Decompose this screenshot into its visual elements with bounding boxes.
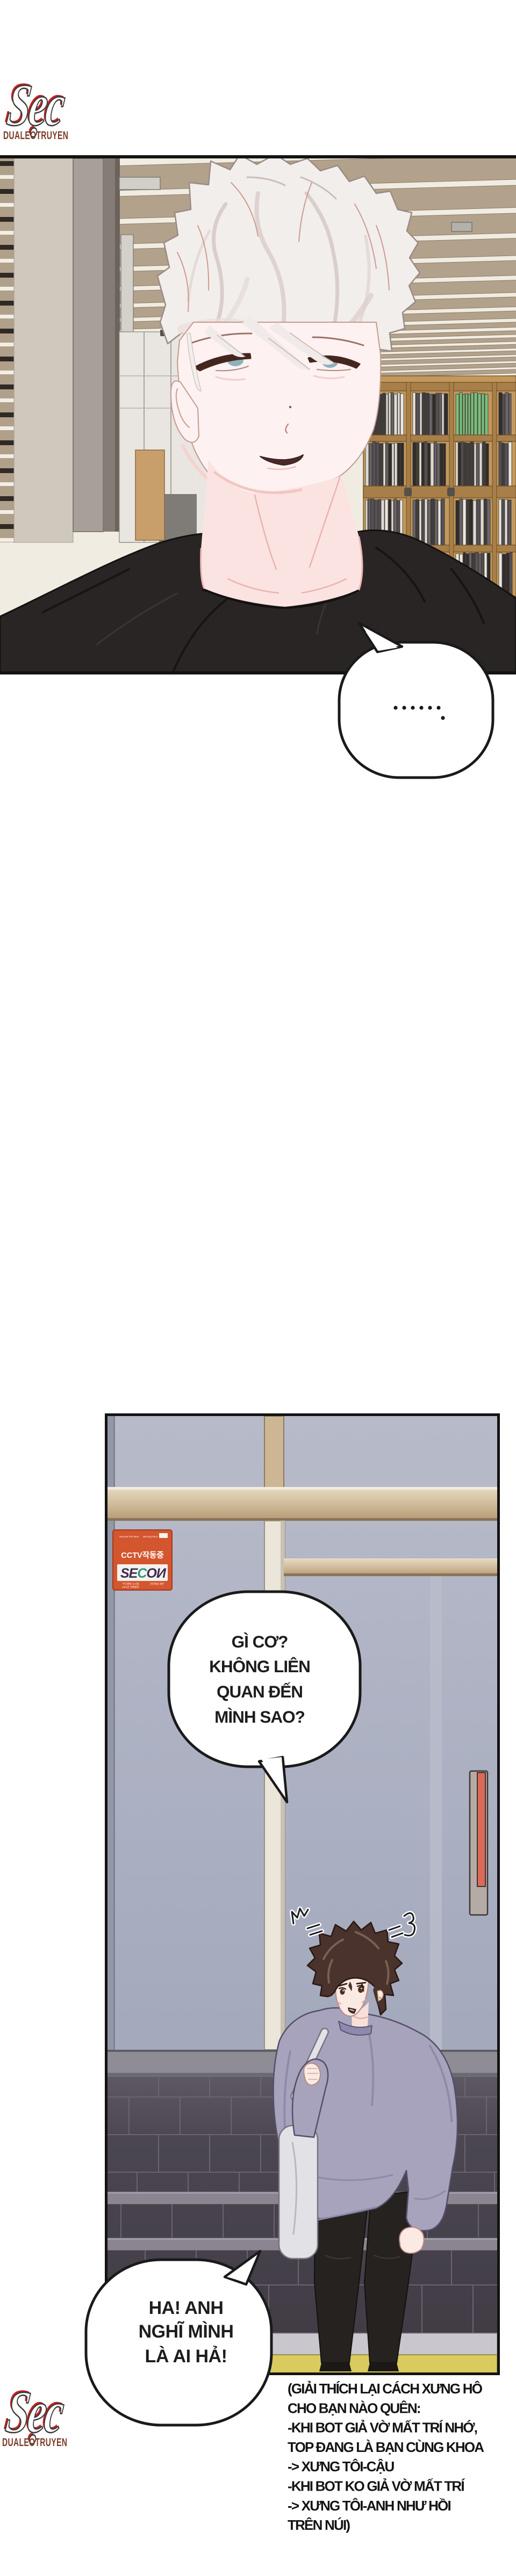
svg-text:HA! ANH: HA! ANH [149, 2298, 224, 2318]
svg-text:-KHI BOT KO GIẢ VỜ MẤT TRÍ: -KHI BOT KO GIẢ VỜ MẤT TRÍ [288, 2478, 465, 2494]
svg-text:TRÊN NÚI): TRÊN NÚI) [288, 2517, 350, 2533]
svg-text:-> XƯNG TÔI-CẬU: -> XƯNG TÔI-CẬU [288, 2458, 395, 2475]
svg-text:TOP ĐANG LÀ BẠN CÙNG KHOA: TOP ĐANG LÀ BẠN CÙNG KHOA [288, 2439, 484, 2455]
svg-text:CCTV작동중: CCTV작동중 [121, 1550, 164, 1560]
svg-text:Sẹc: Sẹc [3, 2379, 67, 2446]
svg-text:Secures The Next: Secures The Next [119, 1535, 139, 1538]
svg-text:LÀ AI HẢ!: LÀ AI HẢ! [145, 2346, 227, 2367]
svg-text:Security No.9: Security No.9 [143, 1535, 158, 1538]
svg-text:DUALEOTRUYEN: DUALEOTRUYEN [2, 2436, 67, 2448]
svg-text:MÌNH SAO?: MÌNH SAO? [214, 1707, 305, 1726]
svg-text:QUAN ĐẾN: QUAN ĐẾN [217, 1682, 303, 1701]
svg-text:-KHI BOT GIẢ VỜ MẤT TRÍ NHỚ,: -KHI BOT GIẢ VỜ MẤT TRÍ NHỚ, [288, 2420, 477, 2436]
svg-text:DUALEOTRUYEN: DUALEOTRUYEN [3, 129, 68, 141]
svg-text:NGHĨ MÌNH: NGHĨ MÌNH [139, 2321, 234, 2342]
svg-text:무인경비 시스템: 무인경비 시스템 [123, 1582, 139, 1586]
svg-text:CHO BẠN NÀO QUÊN:: CHO BẠN NÀO QUÊN: [288, 2400, 420, 2416]
svg-text:-> XƯNG TÔI-ANH NHƯ HỒI: -> XƯNG TÔI-ANH NHƯ HỒI [288, 2498, 450, 2514]
svg-text:SECOИ: SECOИ [120, 1566, 167, 1581]
svg-text:24시간 관제센터: 24시간 관제센터 [122, 1585, 139, 1589]
svg-text:GÌ CƠ?: GÌ CƠ? [232, 1632, 288, 1651]
svg-text:(GIẢI THÍCH LẠI CÁCH XƯNG HÔ: (GIẢI THÍCH LẠI CÁCH XƯNG HÔ [288, 2381, 483, 2397]
svg-text:Sẹc: Sẹc [4, 72, 68, 139]
svg-text:KHÔNG LIÊN: KHÔNG LIÊN [209, 1657, 310, 1676]
svg-text:안전세상 세콘: 안전세상 세콘 [150, 1582, 164, 1586]
